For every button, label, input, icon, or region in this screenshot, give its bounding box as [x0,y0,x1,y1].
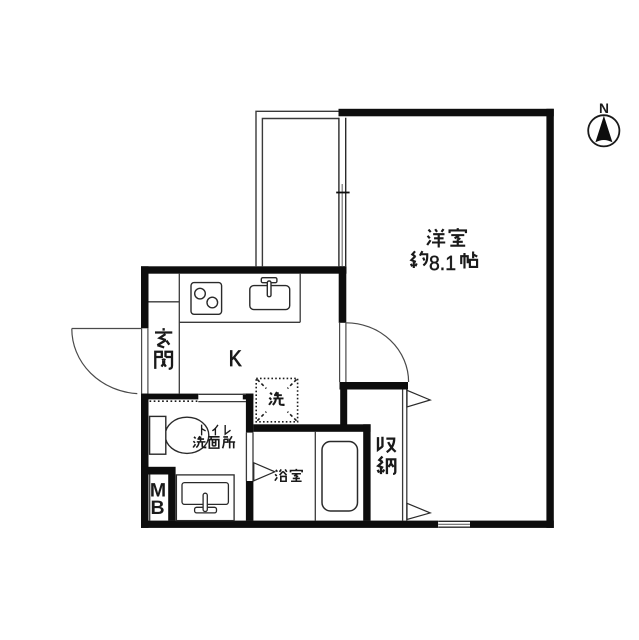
svg-text:N: N [599,101,609,116]
svg-text:K: K [229,346,242,371]
svg-text:8.1: 8.1 [429,252,456,275]
svg-text:B: B [151,497,165,519]
